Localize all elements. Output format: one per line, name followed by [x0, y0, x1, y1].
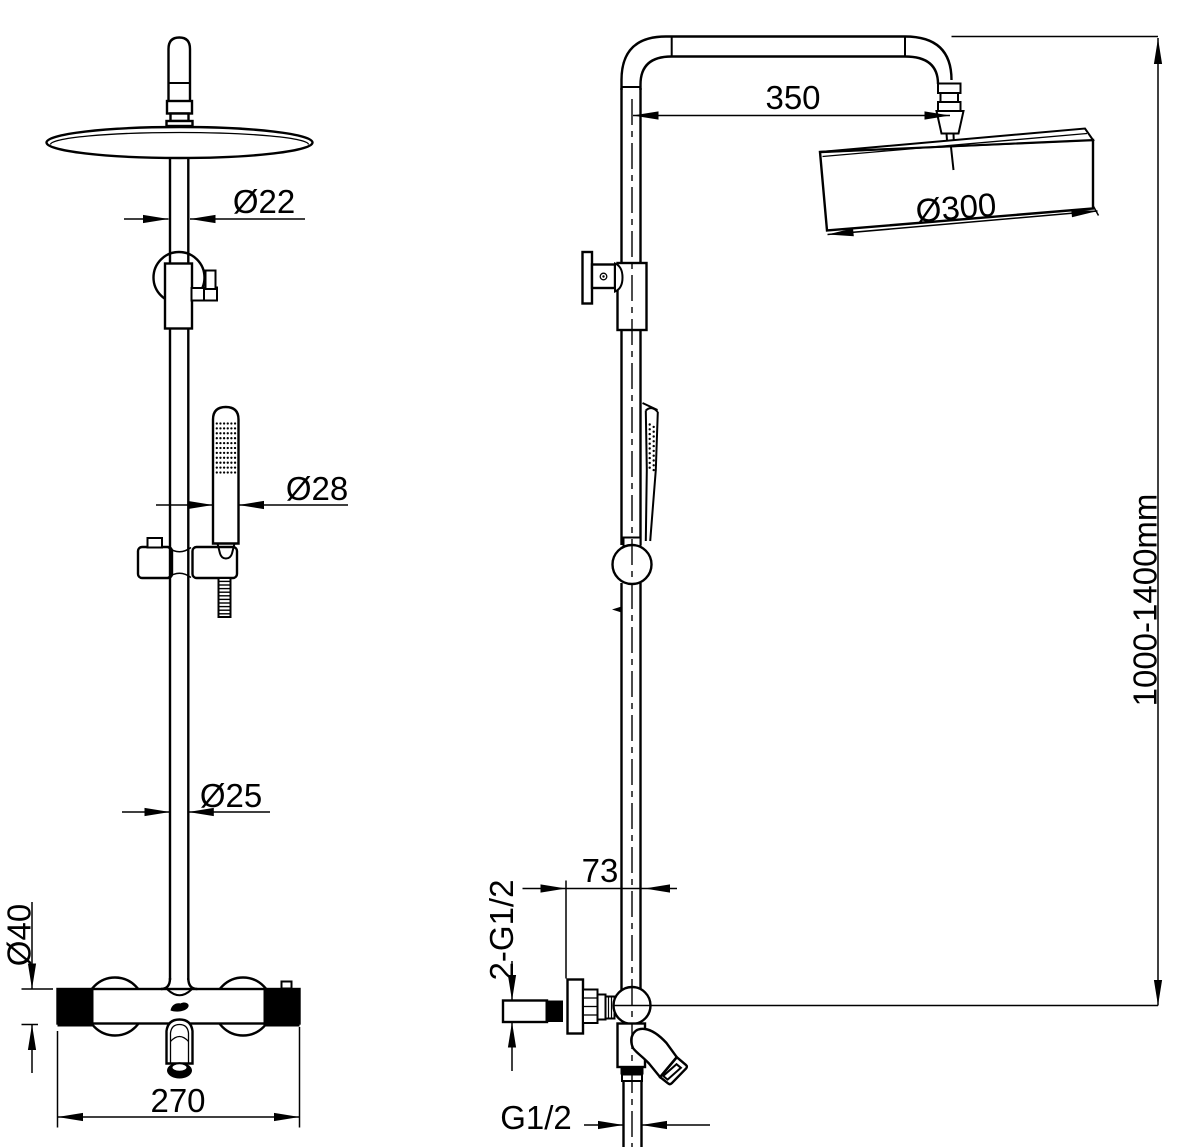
mixer-right-handle — [264, 988, 300, 1027]
mixer-handle-tab — [282, 982, 292, 989]
wall-bracket-flange — [583, 252, 593, 304]
mixer-left-handle — [58, 988, 94, 1027]
swivel-ring — [941, 93, 959, 102]
slider-bracket-tab — [148, 538, 163, 548]
inlet-pipe-seal — [546, 1001, 564, 1023]
dim-label-riser-diameter: Ø25 — [200, 777, 262, 814]
diverter-knob — [206, 271, 216, 290]
slider-bracket-left — [138, 547, 172, 578]
dim-label-valve-body-diameter: Ø40 — [1, 904, 38, 966]
front-top-pipe-cap — [169, 38, 191, 102]
hand-shower-profile-back — [646, 411, 647, 542]
front-top-flange — [167, 121, 193, 126]
shower-column-technical-drawing: Ø22 Ø28 Ø25 Ø40 — [0, 0, 1177, 1148]
wall-bracket-screw-dot — [602, 275, 604, 277]
front-wall-pipe-section — [165, 264, 192, 329]
mixer-wall-flange — [568, 980, 584, 1034]
dim-label-height-range: 1000-1400mm — [1127, 494, 1164, 707]
shower-head-disc — [47, 127, 313, 158]
front-top-collar — [167, 101, 192, 114]
spout-aerator — [172, 1063, 188, 1071]
front-hand-shower — [213, 407, 239, 559]
mixer-connector-ring — [598, 995, 606, 1020]
swivel-ring — [938, 102, 961, 111]
dim-label-wall-offset: 73 — [582, 852, 619, 889]
technical-drawing-canvas: Ø22 Ø28 Ø25 Ø40 — [0, 0, 1177, 1148]
front-spout — [167, 1020, 193, 1079]
dim-label-inlet-connection: 2-G1/2 — [483, 880, 520, 981]
dim-label-head-diameter: Ø300 — [914, 186, 998, 230]
inlet-pipe — [503, 1001, 547, 1023]
front-top-pipe-assembly — [167, 38, 193, 127]
dim-label-top-pipe-diameter: Ø22 — [233, 183, 295, 220]
dim-label-valve-width: 270 — [150, 1082, 205, 1119]
hose-thread-connector — [219, 578, 231, 617]
front-hose-connector — [219, 578, 231, 617]
front-shower-head-disc — [47, 127, 313, 158]
dim-label-arm-length: 350 — [765, 79, 820, 116]
slider-bracket-right — [193, 547, 238, 578]
swivel-ring — [938, 84, 961, 94]
dim-label-hose-connection: G1/2 — [500, 1099, 572, 1136]
dim-label-hand-shower-diameter: Ø28 — [286, 470, 348, 507]
